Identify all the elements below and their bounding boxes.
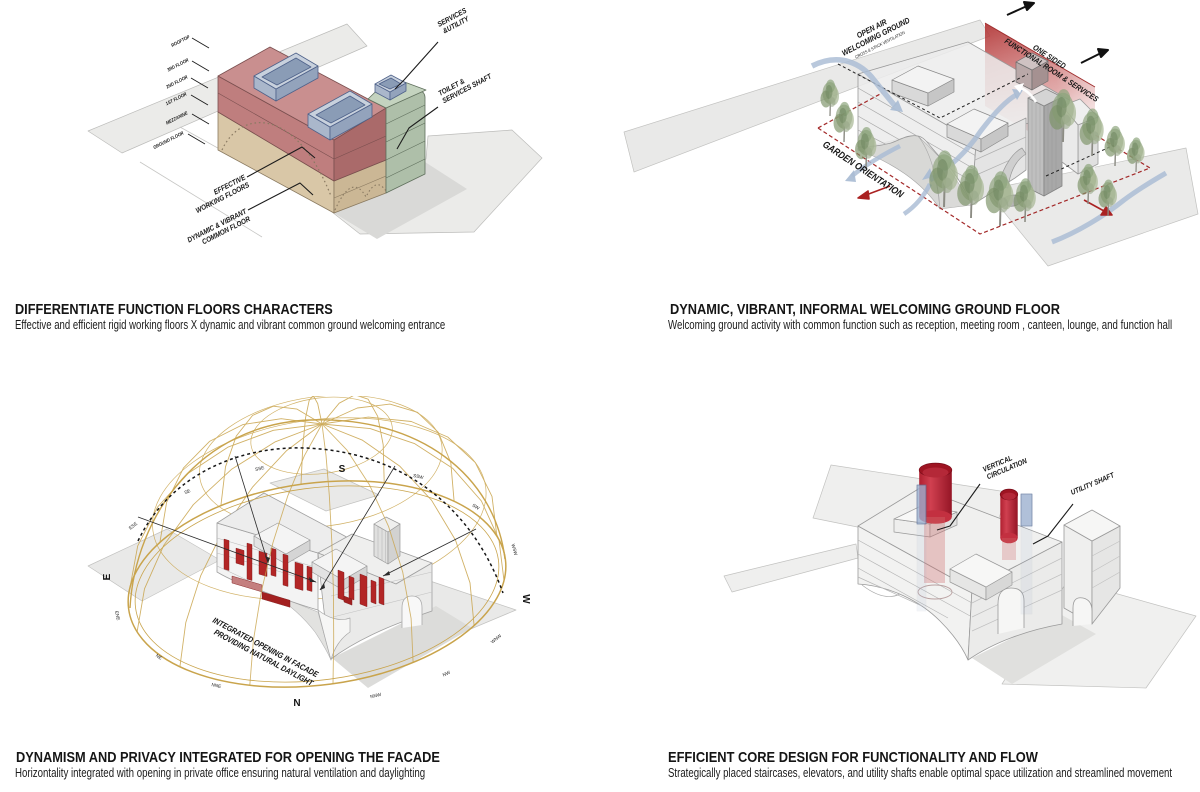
svg-text:SERVICES&UTILITY: SERVICES&UTILITY (436, 7, 472, 36)
svg-text:NW: NW (442, 669, 452, 677)
svg-text:W: W (520, 594, 531, 604)
svg-text:2ND FLOOR: 2ND FLOOR (164, 74, 189, 90)
svg-text:SE: SE (184, 488, 192, 495)
svg-text:INTEGRATED OPENING IN FACADEPR: INTEGRATED OPENING IN FACADEPROVIDING NA… (206, 615, 320, 688)
svg-text:NNE: NNE (211, 682, 222, 689)
svg-text:ESE: ESE (128, 521, 138, 531)
svg-text:SW: SW (471, 503, 480, 512)
svg-text:SSW: SSW (413, 473, 425, 480)
svg-text:E: E (102, 573, 113, 580)
svg-text:N: N (293, 698, 300, 709)
svg-text:3RD FLOOR: 3RD FLOOR (166, 57, 190, 73)
svg-text:ENE: ENE (114, 610, 121, 620)
svg-text:NNW: NNW (370, 692, 382, 699)
svg-text:WNW: WNW (490, 633, 503, 645)
svg-text:NE: NE (155, 653, 163, 661)
svg-text:S: S (339, 464, 346, 475)
svg-text:UTILITY SHAFT: UTILITY SHAFT (1070, 472, 1116, 497)
svg-text:TOILET &SERVICES SHAFT: TOILET &SERVICES SHAFT (437, 65, 493, 105)
svg-text:ROOFTOP: ROOFTOP (170, 34, 190, 48)
svg-text:VERTICALCIRCULATION: VERTICALCIRCULATION (982, 450, 1029, 482)
svg-text:SSE: SSE (255, 465, 265, 472)
svg-text:WSW: WSW (510, 543, 518, 556)
svg-text:DYNAMIC & VIBRANTCOMMON FLOOR: DYNAMIC & VIBRANTCOMMON FLOOR (186, 208, 252, 252)
